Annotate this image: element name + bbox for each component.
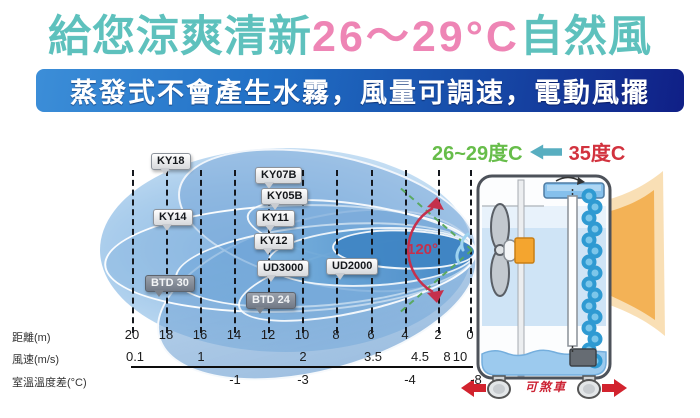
windspeed-tick: 0.1 [126,349,144,364]
windspeed-axis-label: 風速(m/s) [12,351,59,367]
swing-arrow-right [602,379,627,397]
distance-gridline [166,170,168,333]
distance-tick: 6 [367,327,374,342]
brake-caption: 可煞車 [514,378,578,395]
feature-banner-text: 蒸發式不會產生水霧，風量可調速，電動風擺 [70,71,650,110]
axis-separator-line [131,366,473,368]
device-frame [518,180,524,376]
model-tag-ud2000: UD2000 [326,258,378,275]
device-illustration [390,160,700,410]
distance-tick: 14 [227,327,241,342]
tempdiff-axis-label: 室溫溫度差(°C) [12,374,87,390]
distance-tick: 20 [125,327,139,342]
arc-arrowhead-icon [427,290,444,303]
windspeed-tick: 4.5 [411,349,429,364]
cool-air-splash [462,234,468,250]
title-temp-range: 26～29°C [312,13,520,61]
caster-wheel-hub [583,384,595,394]
distance-gridline [200,170,202,333]
distance-gridline [336,170,338,333]
windspeed-tick: 3.5 [364,349,382,364]
distance-gridline [371,170,373,333]
oscillation-angle-label: 120° [407,241,438,258]
fan-motor-cap [504,240,516,261]
title-prefix: 給您涼爽清新 [48,13,312,61]
poster: 給您涼爽清新26～29°C自然風 蒸發式不會產生水霧，風量可調速，電動風擺 [0,0,700,418]
model-tag-ky18: KY18 [151,153,191,170]
caster-wheel-hub [493,384,505,394]
distance-gridline [234,170,236,333]
model-tag-btd24: BTD 24 [246,292,296,309]
distance-tick: 4 [401,327,408,342]
tempdiff-tick: -8 [470,372,482,387]
distance-tick: 2 [434,327,441,342]
distance-tick: 10 [295,327,309,342]
windspeed-tick: 2 [299,349,306,364]
windspeed-tick: 1 [197,349,204,364]
water-pump [570,349,596,366]
windspeed-tick: 8 [443,349,450,364]
distance-axis-label: 距離(m) [12,329,51,345]
tempdiff-tick: -4 [404,372,416,387]
model-tag-ky12: KY12 [254,233,294,250]
arc-arrowhead-icon [427,197,444,210]
model-tag-btd30: BTD 30 [145,275,195,292]
cool-temp-label: 26~29度C [432,137,523,166]
distance-tick: 16 [193,327,207,342]
title-suffix: 自然風 [520,13,652,61]
distance-gridline [132,170,134,333]
distance-tick: 0 [466,327,473,342]
temperature-flow-header: 26~29度C 35度C [432,137,625,166]
feature-banner: 蒸發式不會產生水霧，風量可調速，電動風擺 [36,69,684,112]
main-title: 給您涼爽清新26～29°C自然風 [0,2,700,64]
fan-motor [515,238,534,263]
model-tag-ky14: KY14 [153,209,193,226]
water-pipe [568,196,577,346]
model-tag-ud3000: UD3000 [257,260,309,277]
hot-temp-label: 35度C [569,137,626,166]
distance-tick: 18 [159,327,173,342]
model-tag-ky11: KY11 [256,210,295,227]
left-arrow-icon [530,144,562,160]
model-tag-ky07b: KY07B [255,167,302,184]
airflow-diagram: KY18KY07BKY05BKY14KY11KY12UD3000UD2000BT… [0,118,700,418]
model-tag-ky05b: KY05B [261,188,308,205]
tempdiff-tick: -3 [297,372,309,387]
distance-tick: 8 [332,327,339,342]
distance-tick: 12 [261,327,275,342]
tempdiff-tick: -1 [229,372,241,387]
windspeed-tick: 10 [453,349,467,364]
